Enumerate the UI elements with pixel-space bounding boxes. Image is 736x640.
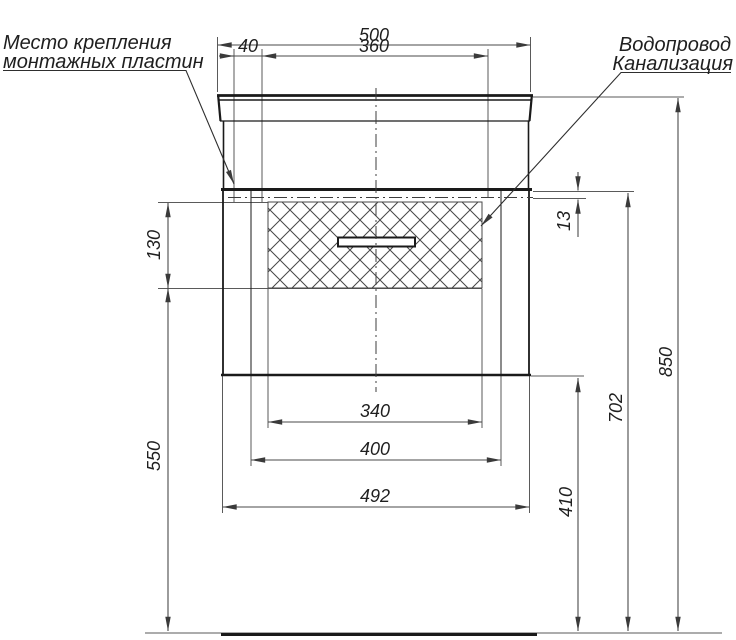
leader-mounting-plates [3, 71, 234, 185]
dim-bottom-clearance: 410 [556, 487, 576, 517]
dim-total-height: 850 [656, 347, 676, 377]
floor-line [145, 633, 722, 635]
dim-cabinet-width: 492 [360, 486, 390, 506]
vanity-installation-drawing: 500 40 360 130 550 340 400 492 13 410 70… [0, 0, 736, 640]
dim-basin-cutout-width: 340 [360, 401, 390, 421]
dim-plate-spacing: 360 [359, 36, 389, 56]
dim-plate-top-inset: 13 [554, 211, 574, 231]
dim-drawer-width: 400 [360, 439, 390, 459]
technical-drawing-canvas: 500 40 360 130 550 340 400 492 13 410 70… [0, 0, 736, 640]
dim-left-height: 550 [144, 441, 164, 471]
dimension-lines [168, 45, 678, 631]
washbasin [217, 96, 533, 190]
note-mounting-line2: монтажных пластин [3, 51, 204, 73]
dim-worktop-height: 702 [606, 393, 626, 423]
dim-plate-zone-height: 130 [144, 230, 164, 260]
mounting-hatch-area [268, 202, 482, 288]
dim-plate-offset: 40 [238, 36, 258, 56]
note-plumbing-line2: Канализация [612, 53, 733, 75]
